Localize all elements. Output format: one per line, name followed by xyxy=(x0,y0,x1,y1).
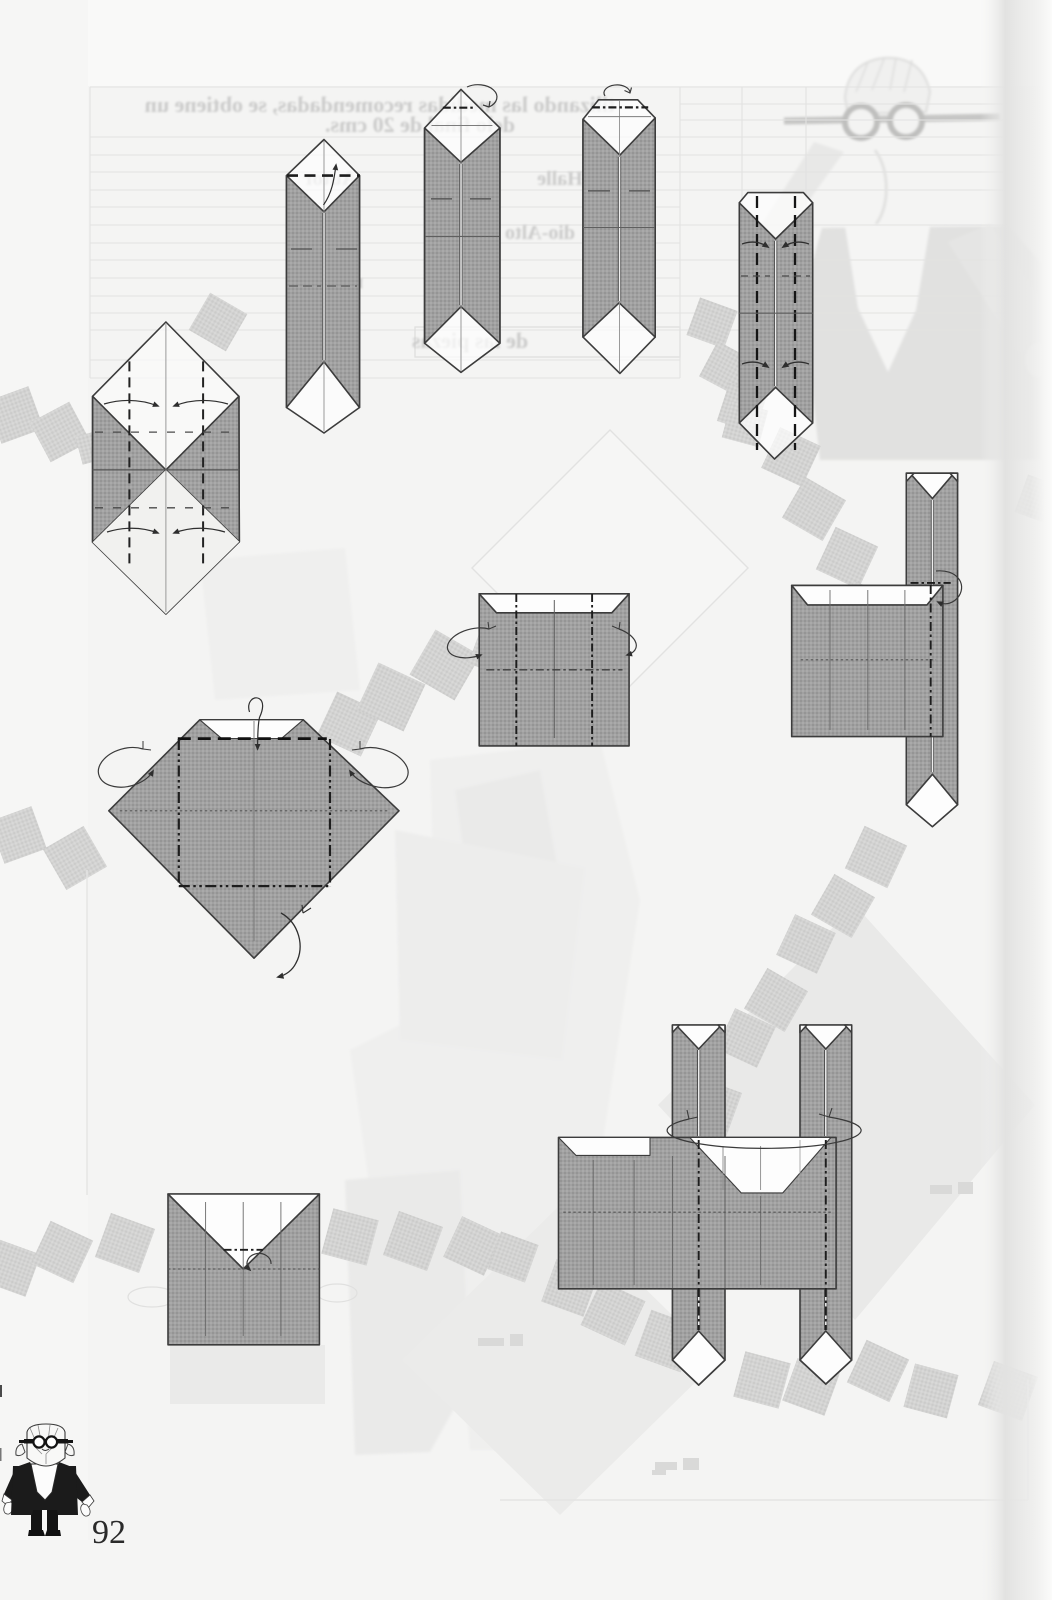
svg-text:92: 92 xyxy=(92,1514,126,1551)
svg-text:Halle: Halle xyxy=(537,168,583,190)
svg-text:dio-Alto: dio-Alto xyxy=(505,222,575,244)
